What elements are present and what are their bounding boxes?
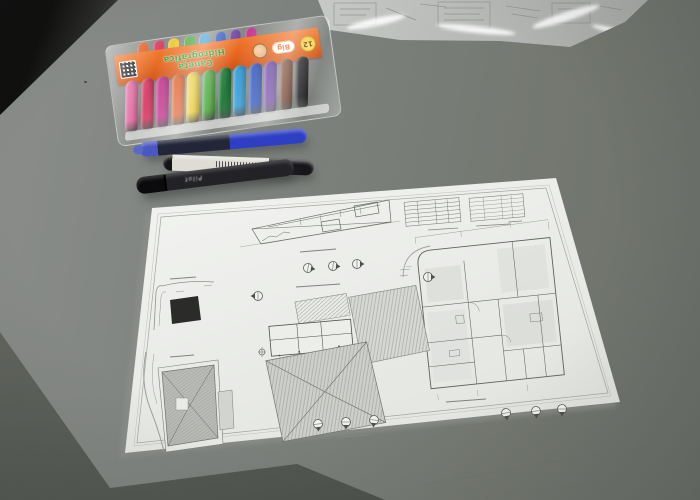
- pen: [125, 80, 139, 134]
- pen: [171, 73, 185, 127]
- qr-code-icon: [119, 59, 138, 78]
- pen: [294, 56, 308, 110]
- pen: [279, 58, 293, 112]
- pack-big-label: Big: [272, 40, 296, 55]
- photo-scene: Caneta Hidrográfica Big 12 Pilot: [0, 0, 700, 500]
- pack-count-badge: 12: [299, 35, 317, 53]
- pen: [202, 69, 216, 123]
- pen: [186, 71, 200, 125]
- pen: [233, 64, 247, 118]
- blueprint-sheet: [0, 0, 700, 500]
- marker-imprint-text: Pilot: [184, 174, 203, 183]
- pen: [248, 62, 262, 116]
- schedule-table-1: [404, 198, 461, 227]
- pen: [264, 60, 278, 114]
- pen: [217, 67, 231, 121]
- pen: [140, 77, 154, 131]
- schedule-table-2: [469, 194, 525, 222]
- pen: [155, 75, 169, 129]
- hand-logo-icon: [252, 42, 269, 59]
